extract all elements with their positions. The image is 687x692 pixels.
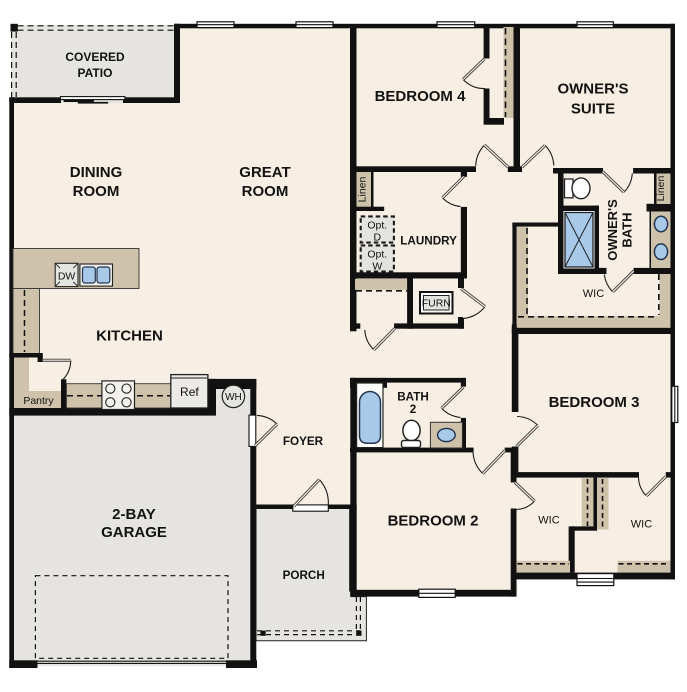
- svg-text:Linen: Linen: [357, 177, 369, 203]
- svg-text:ROOM: ROOM: [242, 183, 289, 200]
- svg-text:FOYER: FOYER: [283, 435, 324, 448]
- svg-text:W: W: [372, 260, 382, 272]
- svg-text:COVERED: COVERED: [65, 50, 125, 64]
- svg-text:WIC: WIC: [631, 519, 652, 531]
- svg-text:BEDROOM 4: BEDROOM 4: [375, 88, 467, 105]
- svg-text:2-BAY: 2-BAY: [112, 506, 156, 523]
- svg-text:BEDROOM 3: BEDROOM 3: [549, 394, 640, 411]
- svg-text:SUITE: SUITE: [571, 101, 615, 118]
- svg-text:2: 2: [410, 403, 417, 416]
- svg-text:WIC: WIC: [538, 515, 559, 527]
- svg-text:Opt.: Opt.: [367, 219, 387, 231]
- svg-text:ROOM: ROOM: [73, 183, 120, 200]
- svg-text:D: D: [374, 231, 382, 243]
- svg-text:PORCH: PORCH: [283, 569, 325, 582]
- svg-text:OWNER'S: OWNER'S: [605, 199, 620, 261]
- svg-text:Pantry: Pantry: [23, 395, 54, 407]
- svg-text:PATIO: PATIO: [78, 66, 113, 80]
- svg-text:Opt.: Opt.: [367, 248, 387, 260]
- svg-text:OWNER'S: OWNER'S: [557, 81, 628, 98]
- svg-text:WH: WH: [225, 392, 242, 403]
- svg-text:LAUNDRY: LAUNDRY: [400, 234, 457, 247]
- svg-text:GARAGE: GARAGE: [101, 524, 167, 541]
- svg-text:Ref: Ref: [180, 385, 199, 399]
- svg-text:FURN: FURN: [422, 298, 451, 310]
- svg-text:WIC: WIC: [583, 288, 604, 300]
- svg-text:BEDROOM 2: BEDROOM 2: [388, 513, 479, 530]
- svg-text:KITCHEN: KITCHEN: [96, 328, 163, 345]
- svg-text:Linen: Linen: [655, 176, 667, 202]
- svg-text:DW: DW: [58, 271, 76, 283]
- svg-text:BATH: BATH: [620, 212, 635, 247]
- svg-text:GREAT: GREAT: [239, 164, 290, 181]
- svg-text:DINING: DINING: [70, 164, 123, 181]
- svg-text:BATH: BATH: [397, 391, 429, 404]
